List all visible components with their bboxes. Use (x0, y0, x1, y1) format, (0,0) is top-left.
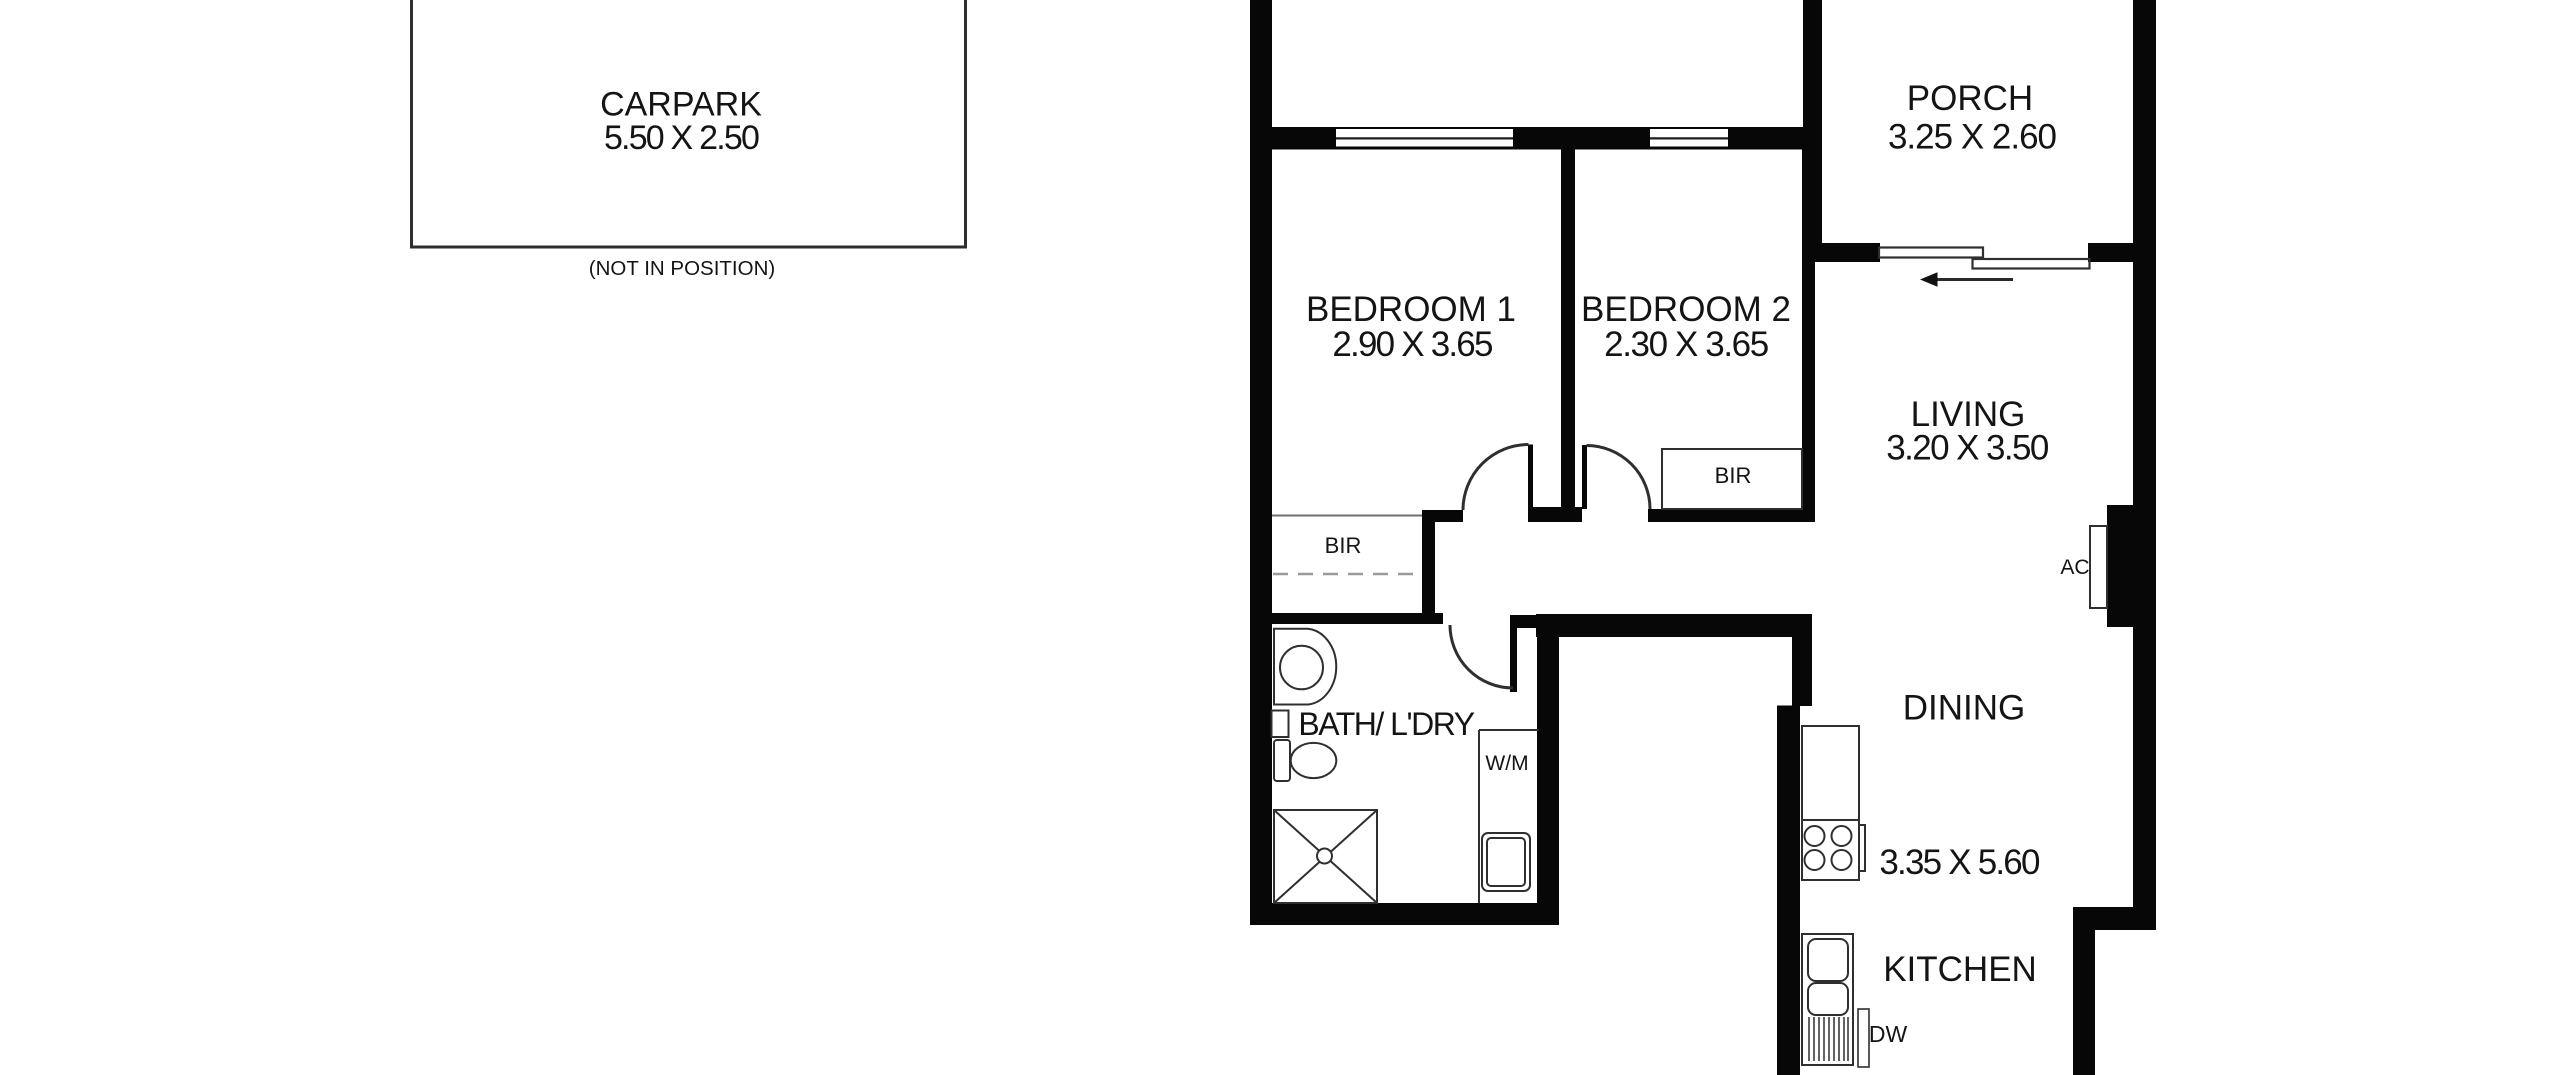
svg-text:PORCH: PORCH (1907, 79, 2033, 118)
svg-text:CARPARK: CARPARK (600, 86, 762, 124)
svg-text:BEDROOM 1: BEDROOM 1 (1306, 290, 1516, 329)
svg-text:BATH/ L'DRY: BATH/ L'DRY (1298, 706, 1474, 742)
svg-text:(NOT IN POSITION): (NOT IN POSITION) (589, 257, 775, 280)
svg-text:W/M: W/M (1485, 752, 1528, 775)
svg-text:AC: AC (2060, 556, 2089, 579)
svg-text:5.50 X 2.50: 5.50 X 2.50 (604, 119, 759, 157)
svg-text:DINING: DINING (1903, 689, 2026, 728)
svg-text:KITCHEN: KITCHEN (1883, 950, 2037, 989)
svg-text:BIR: BIR (1715, 463, 1752, 488)
svg-text:BIR: BIR (1325, 533, 1362, 558)
svg-text:2.90 X 3.65: 2.90 X 3.65 (1332, 325, 1492, 364)
svg-text:DW: DW (1869, 1021, 1908, 1047)
svg-text:BEDROOM 2: BEDROOM 2 (1581, 290, 1791, 329)
svg-text:3.35 X 5.60: 3.35 X 5.60 (1879, 843, 2040, 882)
svg-text:3.25 X 2.60: 3.25 X 2.60 (1888, 118, 2057, 157)
svg-text:3.20 X 3.50: 3.20 X 3.50 (1886, 429, 2049, 468)
svg-text:2.30 X 3.65: 2.30 X 3.65 (1604, 325, 1768, 364)
